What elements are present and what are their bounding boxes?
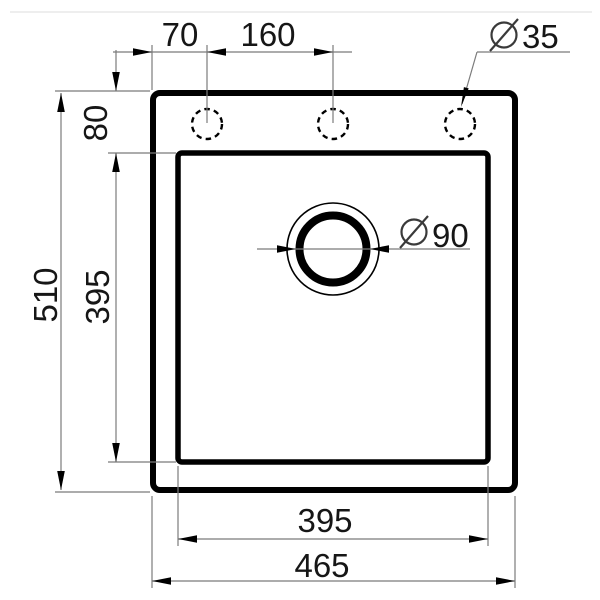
dim-drain-diameter-label: 90 <box>432 217 469 254</box>
diameter-symbol-icon <box>490 19 518 51</box>
bowl-outline <box>178 153 488 462</box>
dim-hole-spacing-label: 160 <box>240 16 295 53</box>
dim-bowl-width-label: 395 <box>297 502 352 539</box>
drawing-svg: 70 160 35 90 80 510 395 395 465 <box>0 0 600 600</box>
dim-hole-offset-label: 70 <box>162 16 199 53</box>
dim-hole-diameter-label: 35 <box>522 18 559 55</box>
dim-bowl-depth-label: 395 <box>79 269 116 324</box>
dim-overall-depth-label: 510 <box>27 267 64 322</box>
sink-dimension-drawing: 70 160 35 90 80 510 395 395 465 <box>0 0 600 600</box>
dim-rim-to-bowl-label: 80 <box>77 105 114 142</box>
diameter-symbol-icon <box>400 216 428 248</box>
dim-overall-width-label: 465 <box>294 547 349 584</box>
faucet-hole-right <box>445 109 475 139</box>
dimension-labels: 70 160 35 90 80 510 395 395 465 <box>27 16 559 584</box>
